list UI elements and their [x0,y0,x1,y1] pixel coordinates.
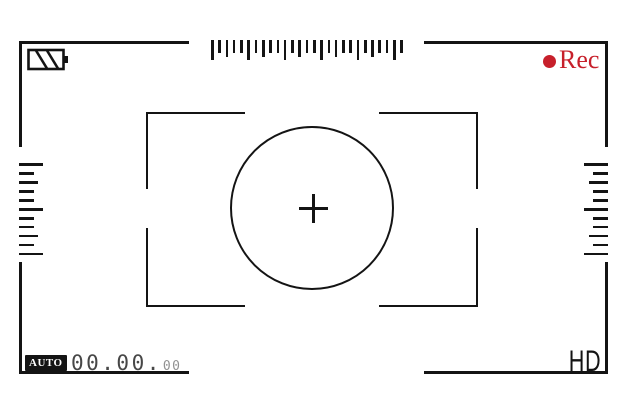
ruler-tick [19,199,34,202]
ruler-tick [218,40,221,53]
ruler-tick [211,40,214,60]
ruler-tick [269,40,272,53]
right-scale-ruler [584,163,608,255]
ruler-tick [19,217,34,220]
ruler-tick [584,163,608,166]
focus-bracket-bottom-left [146,228,245,307]
ruler-tick [593,190,608,193]
ruler-tick [584,253,608,256]
ruler-tick [284,40,287,60]
frame-border-top-left [19,41,189,44]
rec-indicator[interactable]: Rec [543,47,599,73]
time-counter: 00.00. 00 [71,351,182,375]
battery-icon [27,48,69,77]
ruler-tick [593,226,608,229]
ruler-tick [226,40,229,57]
left-scale-ruler [19,163,43,255]
focus-bracket-top-left [146,112,245,189]
ruler-tick [371,40,374,57]
ruler-tick [584,208,608,211]
ruler-tick [342,40,345,53]
ruler-tick [247,40,250,60]
ruler-tick [255,40,258,53]
ruler-tick [19,163,43,166]
frame-border-left-bottom [19,262,22,374]
ruler-tick [593,172,608,175]
ruler-tick [19,190,34,193]
ruler-tick [19,181,38,184]
top-scale-ruler [211,40,403,60]
frame-border-top-right [424,41,608,44]
ruler-tick [262,40,265,57]
crosshair-plus-icon [312,194,315,223]
record-dot-icon [543,55,556,68]
auto-mode-badge[interactable]: AUTO [25,355,67,371]
ruler-tick [593,217,608,220]
ruler-tick [393,40,396,60]
ruler-tick [240,40,243,53]
ruler-tick [320,40,323,60]
frame-border-right-top [605,41,608,147]
ruler-tick [378,40,381,53]
frame-border-left-top [19,41,22,147]
ruler-tick [364,40,367,53]
ruler-tick [19,172,34,175]
ruler-tick [593,244,608,247]
ruler-tick [19,235,38,238]
ruler-tick [328,40,331,53]
ruler-tick [19,226,34,229]
ruler-tick [306,40,309,53]
ruler-tick [386,40,389,53]
frame-border-right-bottom [605,262,608,374]
ruler-tick [593,199,608,202]
ruler-tick [589,235,608,238]
focus-bracket-top-right [379,112,478,189]
ruler-tick [313,40,316,53]
time-counter-main: 00.00. [71,351,162,375]
ruler-tick [298,40,301,57]
ruler-tick [19,244,34,247]
rec-label: Rec [559,47,599,73]
focus-bracket-bottom-right [379,228,478,307]
ruler-tick [589,181,608,184]
ruler-tick [335,40,338,57]
ruler-tick [277,40,280,53]
ruler-tick [19,253,43,256]
ruler-tick [233,40,236,53]
ruler-tick [19,208,43,211]
ruler-tick [400,40,403,53]
hd-quality-label: HD [568,348,601,376]
camera-viewfinder: Rec AUTO 00.00. 00 HD [0,0,626,418]
time-counter-frames: 00 [163,359,182,374]
ruler-tick [357,40,360,60]
ruler-tick [349,40,352,53]
ruler-tick [291,40,294,53]
